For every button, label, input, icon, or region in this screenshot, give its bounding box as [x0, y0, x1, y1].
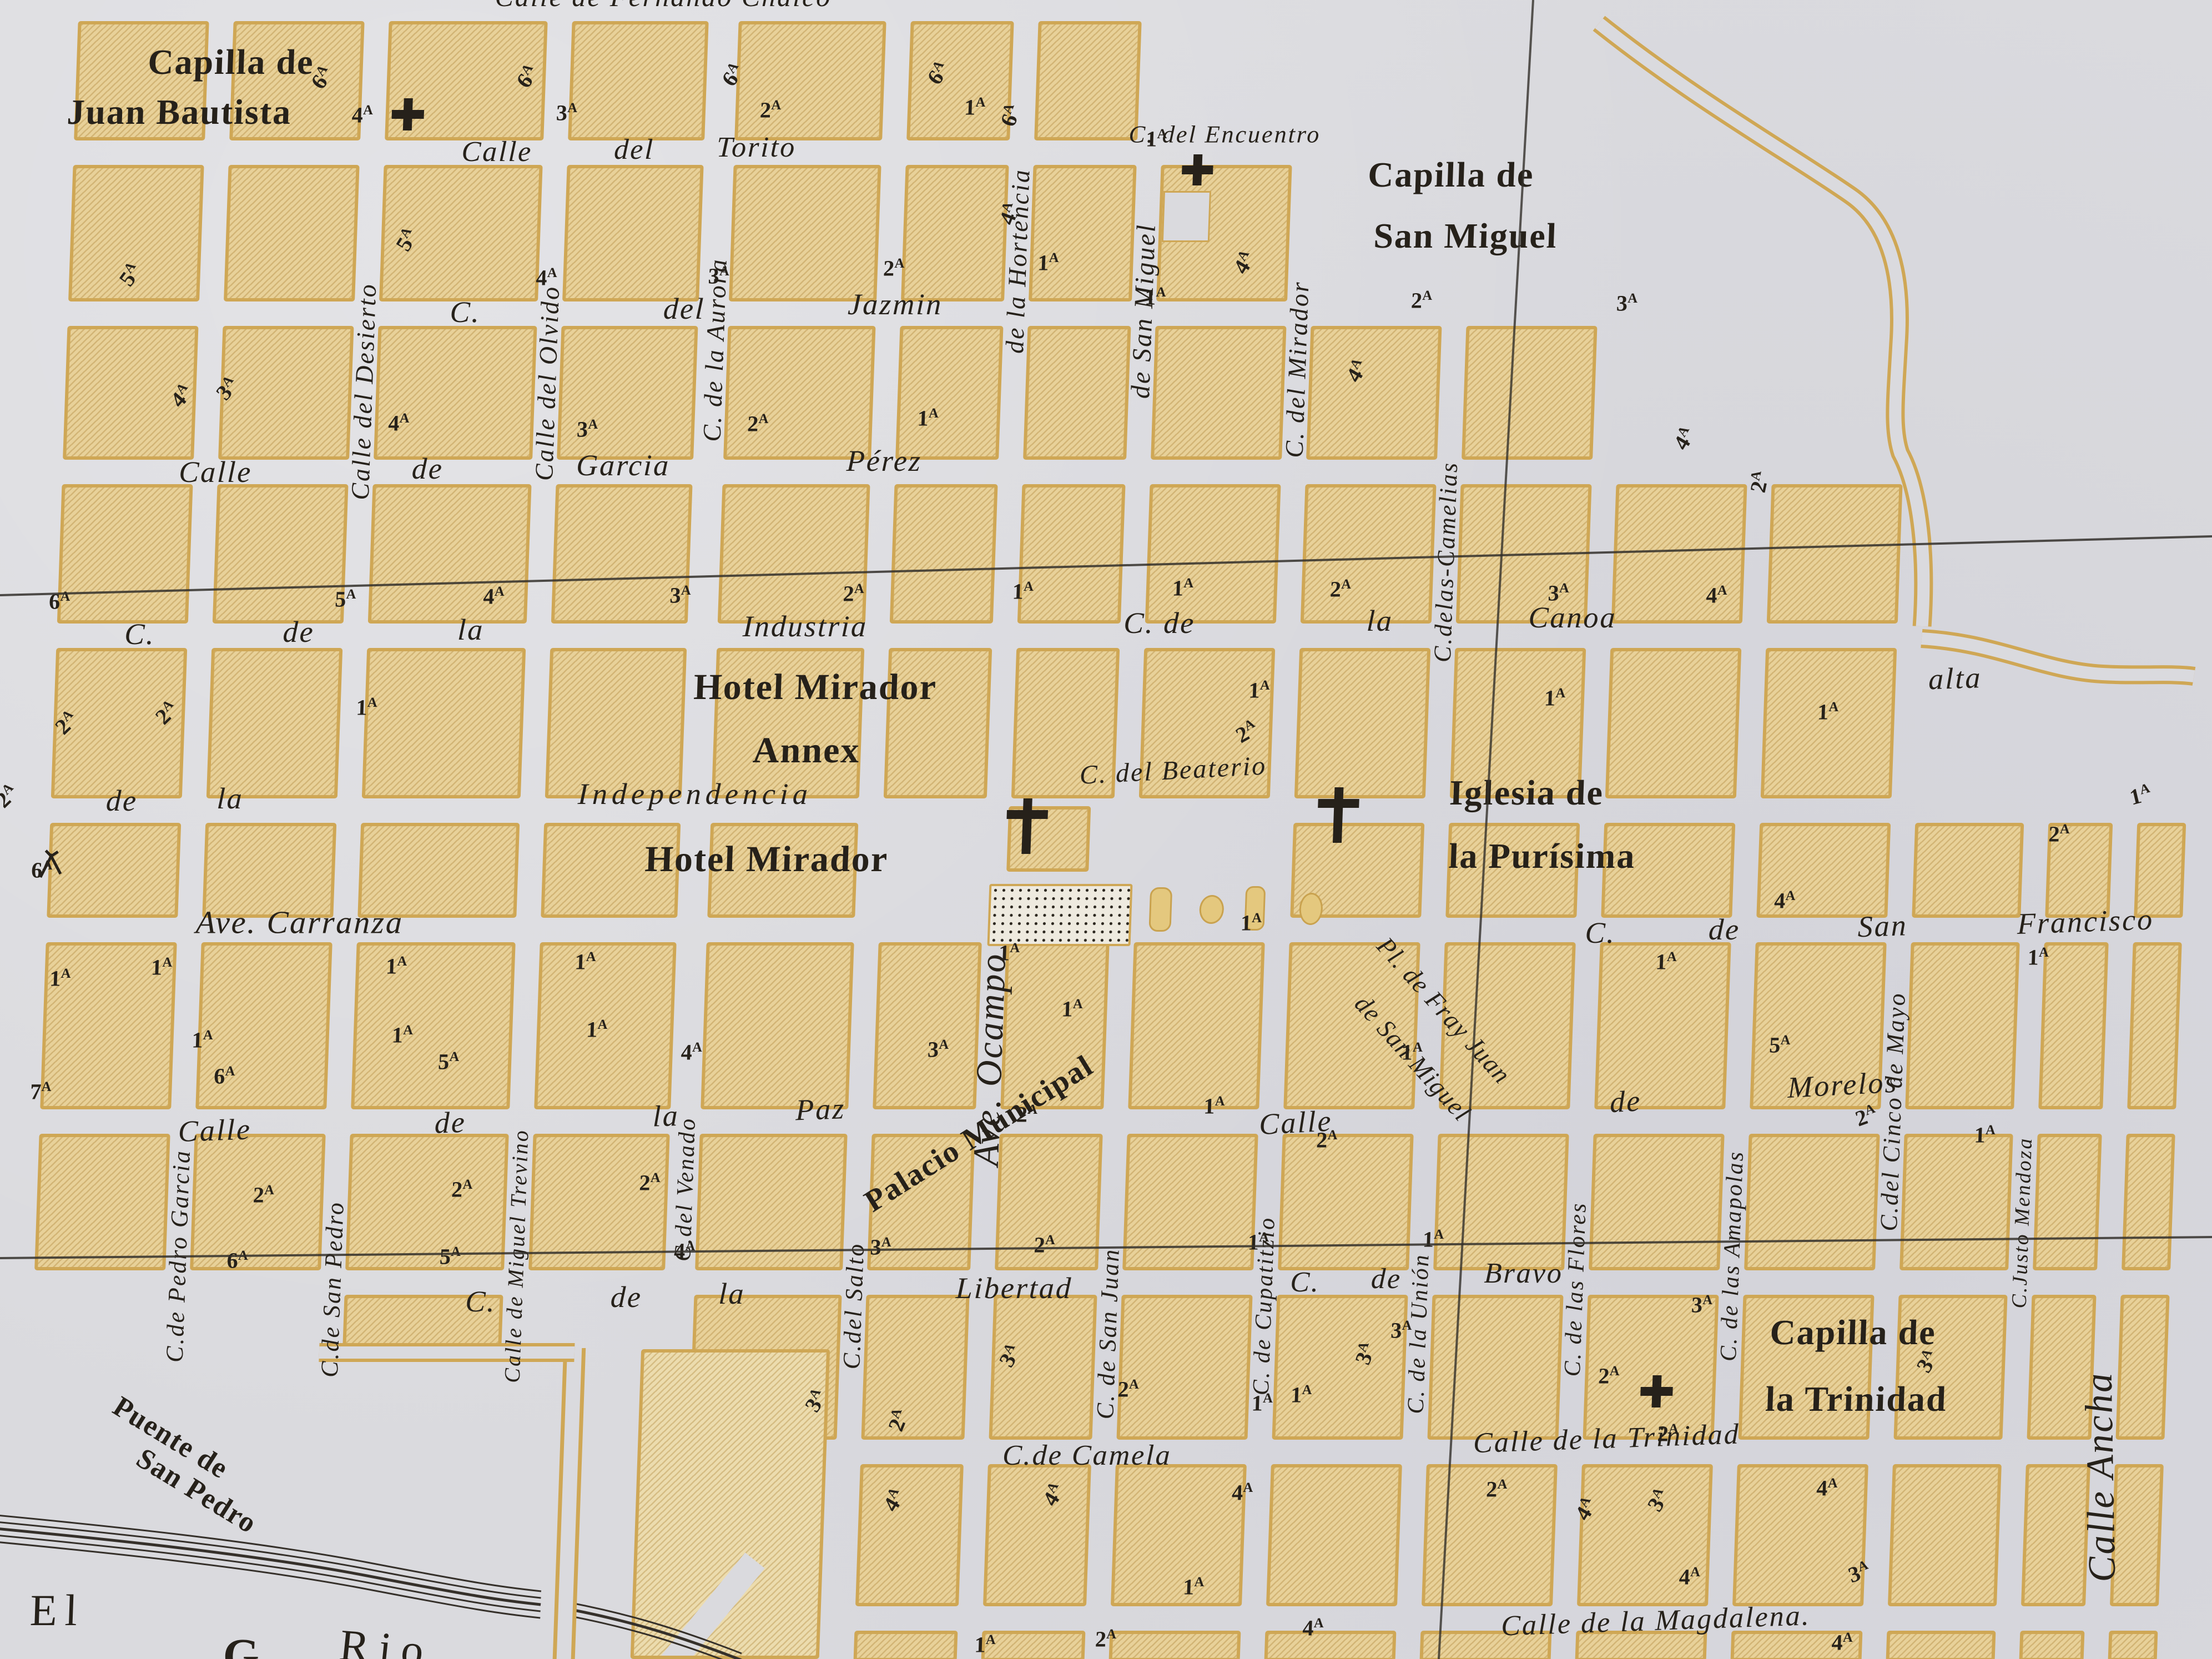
- fold-lines-layer: [0, 0, 2212, 1659]
- fold-line-vertical: [1439, 0, 1533, 1659]
- city-map: El Rio G Calle de Fernando ChalcoCallede…: [0, 0, 2212, 1659]
- fold-line-horizontal-1: [0, 536, 2212, 595]
- fold-line-horizontal-2: [0, 1237, 2212, 1258]
